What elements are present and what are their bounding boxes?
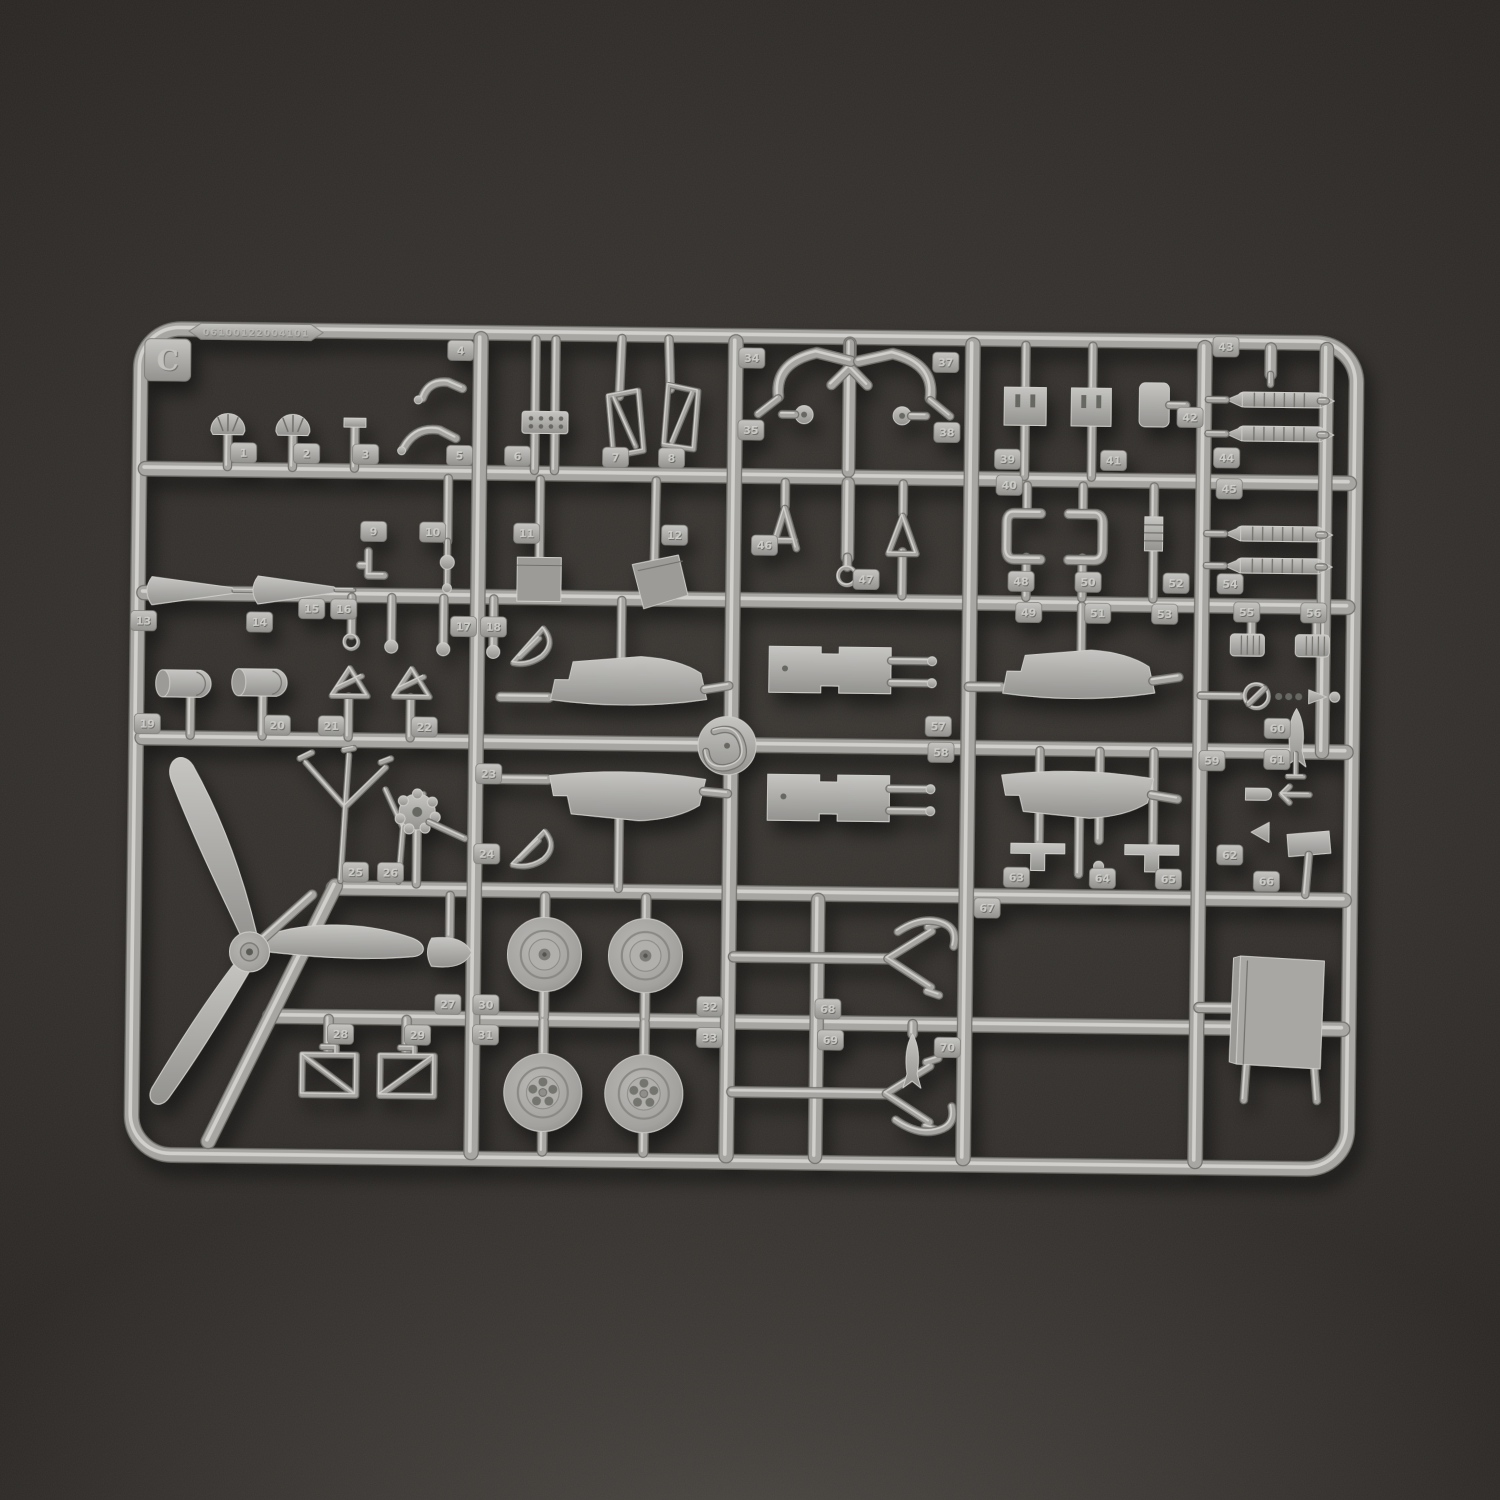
plastic-runner <box>1304 853 1309 895</box>
svg-text:68: 68 <box>820 1003 835 1016</box>
part-67-door <box>1236 956 1324 1069</box>
part-tag-56: 5656 <box>1301 603 1327 623</box>
part-tag-63: 6363 <box>1003 867 1029 887</box>
plastic-disc <box>398 796 408 806</box>
svg-text:37: 37 <box>938 356 953 369</box>
part-tag-7: 77 <box>602 447 628 467</box>
plastic-part <box>232 669 246 696</box>
svg-text:35: 35 <box>743 424 758 437</box>
part-tag-6: 66 <box>504 446 530 466</box>
svg-text:7: 7 <box>612 451 620 464</box>
svg-text:27: 27 <box>440 998 455 1011</box>
svg-text:10: 10 <box>425 526 441 539</box>
part-tag-54: 5454 <box>1217 574 1243 594</box>
part-tag-61: 6161 <box>1264 749 1290 769</box>
svg-text:58: 58 <box>933 746 948 759</box>
part-tag-24: 2424 <box>474 844 500 864</box>
svg-text:53: 53 <box>1157 608 1172 621</box>
svg-text:11: 11 <box>519 527 534 540</box>
svg-text:67: 67 <box>979 902 994 915</box>
part-tag-55: 5555 <box>1234 602 1260 622</box>
stub-v-cyl <box>1269 347 1271 375</box>
part-68-gear-strut <box>732 955 887 958</box>
part-tag-43: 4343 <box>1213 337 1239 357</box>
part-17-pin <box>487 645 500 658</box>
part-30-wheel <box>507 917 582 992</box>
svg-text:55: 55 <box>1239 606 1254 619</box>
sprue-letter-plate: CC <box>144 339 191 382</box>
svg-text:46: 46 <box>757 539 773 552</box>
part-tag-5: 55 <box>446 445 472 465</box>
svg-text:43: 43 <box>1218 341 1233 354</box>
svg-text:8: 8 <box>668 452 676 465</box>
part-tag-16: 1616 <box>331 599 357 619</box>
part-tag-67: 6767 <box>974 898 1000 918</box>
part-11-panel <box>517 557 562 602</box>
svg-text:70: 70 <box>940 1042 956 1055</box>
svg-text:18: 18 <box>486 621 501 634</box>
part-tag-46: 4646 <box>751 535 777 555</box>
part-tag-25: 2525 <box>342 862 368 882</box>
plastic-runner <box>1152 675 1179 681</box>
part-tag-41: 4141 <box>1100 450 1126 470</box>
plastic-disc <box>926 785 935 794</box>
svg-text:24: 24 <box>479 848 495 861</box>
svg-text:23: 23 <box>481 768 496 781</box>
part-tag-44: 4444 <box>1213 448 1239 468</box>
plastic-disc <box>427 797 437 807</box>
part-3-lever <box>344 418 366 427</box>
part-33-wheel <box>604 1054 683 1133</box>
svg-text:56: 56 <box>1306 607 1322 620</box>
part-tag-10: 1010 <box>420 522 446 542</box>
part-tag-57: 5757 <box>925 716 951 736</box>
svg-text:61: 61 <box>1269 754 1284 767</box>
part-tag-37: 3737 <box>933 352 959 372</box>
part-tag-32: 3232 <box>697 996 723 1016</box>
svg-text:13: 13 <box>136 615 151 628</box>
part-tag-29: 2929 <box>404 1025 430 1045</box>
part-tag-51: 5151 <box>1085 603 1111 623</box>
svg-text:40: 40 <box>1002 479 1018 492</box>
photo-stage: 1122334455667788343437373535383839394141… <box>0 0 1500 1500</box>
part-tag-14: 1414 <box>246 612 272 632</box>
part-tag-13: 1313 <box>130 610 156 630</box>
part-tag-38: 3838 <box>934 422 960 442</box>
part-tag-23: 2323 <box>476 764 502 784</box>
part-42-box <box>1139 383 1170 427</box>
svg-text:17: 17 <box>456 621 471 634</box>
plastic-runner <box>781 413 795 415</box>
rail-v6b <box>846 482 848 558</box>
plastic-runner <box>233 589 254 591</box>
svg-text:54: 54 <box>1222 578 1238 591</box>
svg-text:69: 69 <box>823 1034 838 1047</box>
svg-text:5: 5 <box>456 450 464 463</box>
plastic-runner <box>498 777 547 779</box>
svg-text:16: 16 <box>336 603 352 616</box>
svg-text:15: 15 <box>304 603 319 616</box>
part-tag-27: 2727 <box>435 994 461 1014</box>
svg-text:42: 42 <box>1182 411 1197 424</box>
svg-text:62: 62 <box>1222 849 1237 862</box>
embossed-code-tag: 0610012200410106100122004101 <box>189 323 323 341</box>
svg-text:57: 57 <box>931 720 946 733</box>
svg-text:34: 34 <box>744 352 760 365</box>
svg-text:19: 19 <box>140 718 155 731</box>
part-tag-66: 6666 <box>1253 871 1279 891</box>
svg-text:50: 50 <box>1080 576 1096 589</box>
plastic-disc <box>927 679 936 688</box>
svg-text:1: 1 <box>240 447 248 460</box>
svg-text:06100122004101: 06100122004101 <box>203 327 310 339</box>
part-16-pin <box>437 643 450 656</box>
svg-text:C: C <box>156 344 179 377</box>
part-tag-35: 3535 <box>738 420 764 440</box>
part-tag-31: 3131 <box>472 1025 498 1045</box>
plastic-runner <box>703 684 728 690</box>
svg-text:47: 47 <box>858 574 873 587</box>
svg-text:14: 14 <box>252 616 268 629</box>
svg-text:22: 22 <box>417 721 432 734</box>
part-tag-58: 5858 <box>928 742 954 762</box>
part-tag-62: 6262 <box>1217 845 1243 865</box>
part-tag-11: 1111 <box>514 523 540 543</box>
svg-text:2: 2 <box>303 448 311 461</box>
part-39-slot-box <box>1004 387 1046 426</box>
svg-text:65: 65 <box>1161 873 1176 886</box>
svg-text:20: 20 <box>270 719 286 732</box>
part-tag-50: 5050 <box>1075 572 1101 592</box>
molded-detail <box>517 565 561 566</box>
part-tag-40: 4040 <box>996 475 1022 495</box>
svg-text:12: 12 <box>667 529 682 542</box>
svg-text:66: 66 <box>1259 875 1275 888</box>
part-tag-30: 3030 <box>473 995 499 1015</box>
part-tag-60: 6060 <box>1264 718 1290 738</box>
svg-text:28: 28 <box>333 1028 348 1041</box>
part-41-slot-box <box>1071 388 1111 426</box>
svg-text:51: 51 <box>1090 607 1105 620</box>
svg-text:45: 45 <box>1221 483 1236 496</box>
part-tag-34: 3434 <box>739 348 765 368</box>
part-tag-42: 4242 <box>1177 407 1203 427</box>
part-31-wheel <box>503 1053 582 1132</box>
svg-text:52: 52 <box>1168 577 1183 590</box>
svg-text:9: 9 <box>370 526 378 539</box>
part-tag-39: 3939 <box>994 449 1020 469</box>
plastic-runner <box>702 790 727 794</box>
small-cylinder <box>1245 788 1271 800</box>
part-69-gear-strut <box>731 1090 886 1093</box>
part-tag-33: 3333 <box>696 1027 722 1047</box>
part-tag-45: 4545 <box>1216 479 1242 499</box>
plastic-disc <box>928 657 937 666</box>
part-tag-22: 2222 <box>411 717 437 737</box>
plastic-disc <box>414 396 422 404</box>
svg-text:60: 60 <box>1270 723 1286 736</box>
part-tag-15: 1515 <box>299 598 325 618</box>
part-tag-52: 5252 <box>1163 573 1189 593</box>
svg-text:21: 21 <box>324 720 339 733</box>
part-tag-9: 99 <box>361 521 387 541</box>
part-15-pin <box>385 640 398 653</box>
plastic-runner <box>335 588 354 590</box>
plastic-runner <box>1199 694 1240 696</box>
svg-text:49: 49 <box>1021 607 1036 620</box>
part-43-ribbed-cylinder <box>1237 392 1326 408</box>
part-52-ribbed <box>1144 517 1162 551</box>
part-tag-28: 2828 <box>327 1024 353 1044</box>
svg-text:31: 31 <box>478 1029 493 1042</box>
plastic-part <box>156 670 170 697</box>
part-tag-20: 2020 <box>264 715 290 735</box>
plastic-disc <box>1330 692 1340 702</box>
part-tag-3: 33 <box>352 444 378 464</box>
svg-text:3: 3 <box>362 448 370 461</box>
plastic-disc <box>926 807 935 816</box>
part-tag-1: 11 <box>230 443 256 463</box>
plastic-runner <box>967 685 1000 687</box>
part-tag-47: 4747 <box>853 569 879 589</box>
part-tag-59: 5959 <box>1199 750 1225 770</box>
part-tag-65: 6565 <box>1155 869 1181 889</box>
part-32-wheel <box>608 918 683 993</box>
svg-text:6: 6 <box>514 450 522 463</box>
part-tag-19: 1919 <box>134 713 160 733</box>
part-tag-53: 5353 <box>1152 604 1178 624</box>
part-tag-64: 6464 <box>1089 868 1115 888</box>
part-45-ribbed-cylinder <box>1235 526 1324 542</box>
rail-v7 <box>814 898 818 1157</box>
part-tag-2: 22 <box>293 443 319 463</box>
plastic-disc <box>442 584 451 593</box>
svg-text:25: 25 <box>348 866 363 879</box>
part-tag-70: 7070 <box>934 1037 960 1057</box>
plastic-runner <box>1168 403 1186 405</box>
part-tag-26: 2626 <box>377 862 403 882</box>
svg-text:63: 63 <box>1009 871 1024 884</box>
part-tag-48: 4848 <box>1008 571 1034 591</box>
part-tag-68: 6868 <box>815 999 841 1019</box>
plastic-runner <box>910 414 926 416</box>
svg-text:30: 30 <box>478 999 494 1012</box>
part-tag-4: 44 <box>448 340 474 360</box>
svg-text:38: 38 <box>939 426 954 439</box>
plastic-disc <box>395 814 405 824</box>
rail-v5 <box>1321 347 1327 752</box>
svg-text:29: 29 <box>410 1029 425 1042</box>
svg-text:26: 26 <box>383 867 399 880</box>
plastic-disc <box>412 789 422 799</box>
svg-text:44: 44 <box>1219 452 1235 465</box>
svg-text:41: 41 <box>1106 455 1121 468</box>
svg-text:64: 64 <box>1095 872 1111 885</box>
part-tag-49: 4949 <box>1016 602 1042 622</box>
svg-text:59: 59 <box>1204 755 1219 768</box>
part-tag-69: 6969 <box>817 1030 843 1050</box>
part-tag-12: 1212 <box>661 525 687 545</box>
sprue-photo: 1122334455667788343437373535383839394141… <box>0 0 1500 1500</box>
plastic-runner <box>499 695 548 697</box>
plastic-disc <box>440 555 454 569</box>
plastic-runner <box>1150 793 1177 799</box>
svg-text:32: 32 <box>702 1001 717 1014</box>
svg-text:4: 4 <box>457 345 465 358</box>
part-tag-18: 1818 <box>480 617 506 637</box>
svg-text:33: 33 <box>702 1032 717 1045</box>
plastic-disc <box>404 824 414 834</box>
part-44-ribbed-cylinder <box>1236 426 1325 442</box>
part-tag-17: 1717 <box>450 616 476 636</box>
svg-text:48: 48 <box>1013 575 1028 588</box>
plastic-disc <box>398 447 406 455</box>
svg-text:39: 39 <box>1000 453 1015 466</box>
part-tag-8: 88 <box>658 448 684 468</box>
part-tag-21: 2121 <box>318 716 344 736</box>
part-54-ribbed-cylinder <box>1235 558 1324 574</box>
part-6-pedal-plate <box>522 411 568 434</box>
